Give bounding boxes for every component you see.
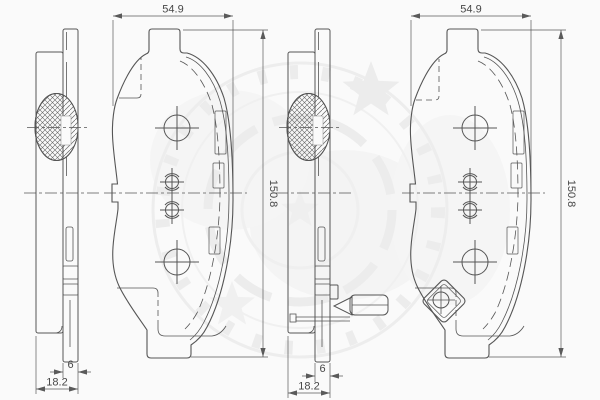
arrowhead-icon	[558, 348, 563, 357]
star-icon	[343, 61, 400, 115]
arrowhead-icon	[69, 386, 78, 391]
dim-label-width-right: 54.9	[460, 4, 481, 16]
arrowhead-icon	[522, 13, 531, 18]
arrowhead-icon	[36, 386, 45, 391]
arrowhead-icon	[260, 30, 265, 39]
brake-pad-technical-drawing: 54.9 150.8 6 18.2 54.9 150.8 6	[0, 0, 600, 400]
dim-label-plate-left: 6	[67, 359, 73, 371]
drawing-canvas: 54.9 150.8 6 18.2 54.9 150.8 6	[0, 0, 600, 400]
arrowhead-icon	[411, 13, 420, 18]
dim-label-plate-right: 6	[319, 363, 325, 375]
dim-label-height-right: 150.8	[565, 180, 577, 208]
dim-label-total-left: 18.2	[46, 377, 67, 389]
arrowhead-icon	[288, 390, 297, 395]
arrowhead-icon	[306, 373, 315, 378]
arrowhead-icon	[330, 373, 339, 378]
dim-label-height-left: 150.8	[267, 180, 279, 208]
dim-label-width-left: 54.9	[162, 4, 183, 16]
arrowhead-icon	[78, 369, 87, 374]
arrowhead-icon	[113, 13, 122, 18]
arrowhead-icon	[558, 30, 563, 39]
left-pad-side-view	[24, 29, 100, 362]
arrowhead-icon	[54, 369, 63, 374]
arrowhead-icon	[224, 13, 233, 18]
arrowhead-icon	[321, 390, 330, 395]
dim-label-total-right: 18.2	[298, 381, 319, 393]
